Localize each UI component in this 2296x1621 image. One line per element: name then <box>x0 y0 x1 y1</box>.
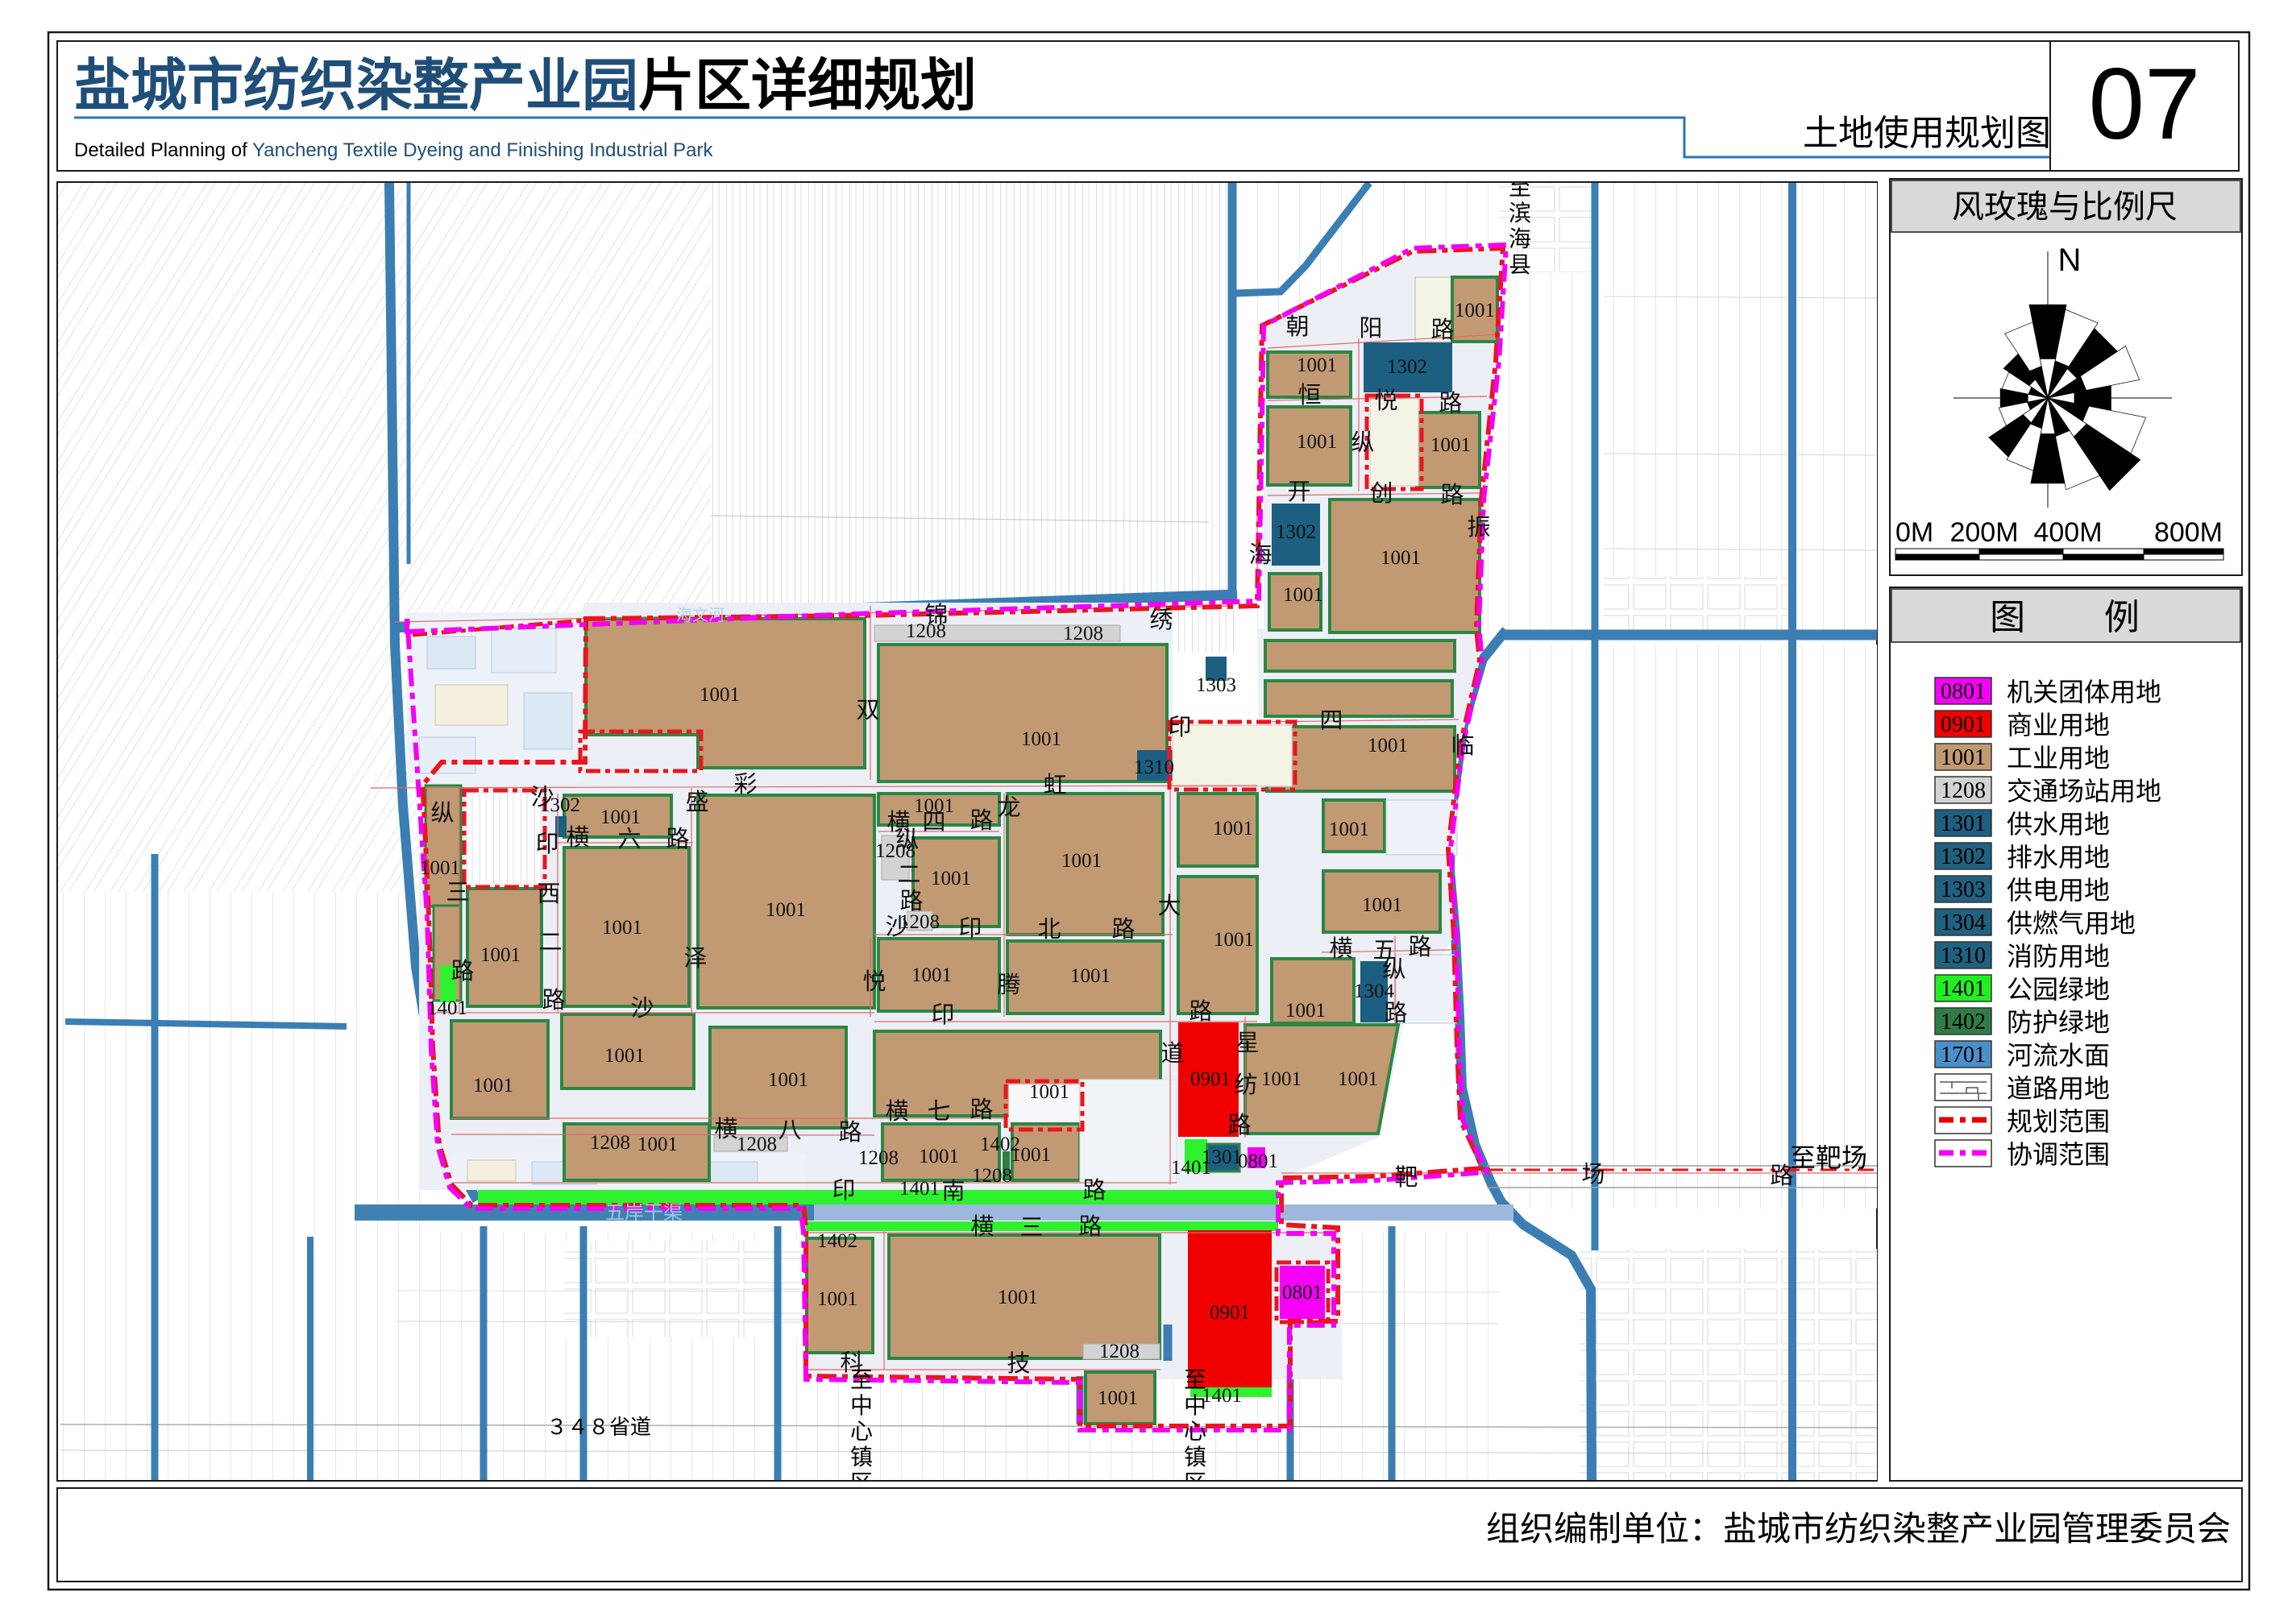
svg-text:技: 技 <box>1007 1350 1030 1377</box>
svg-text:N: N <box>2058 243 2082 278</box>
svg-text:阳: 阳 <box>1359 316 1382 342</box>
svg-text:路: 路 <box>1439 390 1462 417</box>
svg-text:六: 六 <box>617 826 641 852</box>
svg-text:恒: 恒 <box>1297 382 1321 408</box>
svg-text:横: 横 <box>714 1116 737 1142</box>
svg-text:龙: 龙 <box>997 794 1020 821</box>
svg-text:场: 场 <box>1581 1162 1605 1188</box>
svg-text:路: 路 <box>1408 934 1431 960</box>
svg-text:四: 四 <box>922 810 945 835</box>
svg-text:沙: 沙 <box>630 996 654 1022</box>
svg-text:1001: 1001 <box>768 1069 808 1091</box>
svg-text:1001: 1001 <box>1283 584 1323 606</box>
svg-text:1001: 1001 <box>817 1288 857 1310</box>
svg-text:创: 创 <box>1369 480 1393 507</box>
svg-text:悦: 悦 <box>862 968 886 995</box>
svg-text:800M: 800M <box>2154 517 2223 548</box>
svg-text:1310: 1310 <box>1134 757 1174 778</box>
svg-text:盛: 盛 <box>685 789 708 815</box>
svg-text:0801: 0801 <box>1282 1282 1322 1304</box>
svg-text:五岸干渠: 五岸干渠 <box>605 1202 683 1224</box>
svg-text:路: 路 <box>450 958 474 985</box>
svg-text:３４８省道: ３４８省道 <box>546 1416 651 1439</box>
svg-text:彩: 彩 <box>733 772 757 798</box>
svg-text:印: 印 <box>1168 715 1191 740</box>
svg-text:供电用地: 供电用地 <box>2007 876 2110 905</box>
svg-text:1402: 1402 <box>817 1230 857 1252</box>
svg-text:纵: 纵 <box>430 801 454 827</box>
svg-text:路: 路 <box>838 1119 862 1146</box>
svg-text:1001: 1001 <box>1430 434 1471 456</box>
svg-text:路: 路 <box>1384 1000 1407 1026</box>
svg-text:靶: 靶 <box>1394 1164 1418 1191</box>
svg-text:1401: 1401 <box>1941 976 1986 1001</box>
svg-text:0801: 0801 <box>1941 679 1986 704</box>
svg-text:0901: 0901 <box>1190 1068 1231 1090</box>
svg-text:1208: 1208 <box>1099 1341 1140 1362</box>
svg-text:路: 路 <box>1082 1177 1106 1204</box>
svg-text:1001: 1001 <box>600 806 641 828</box>
svg-text:1401: 1401 <box>1202 1385 1242 1407</box>
svg-text:海: 海 <box>1248 541 1272 568</box>
svg-text:1301: 1301 <box>1941 811 1986 836</box>
svg-text:七: 七 <box>927 1099 950 1125</box>
svg-text:腾: 腾 <box>997 972 1020 998</box>
svg-text:1001: 1001 <box>1368 735 1408 757</box>
svg-text:1001: 1001 <box>480 944 521 966</box>
svg-text:临: 临 <box>1451 732 1474 759</box>
svg-text:防护绿地: 防护绿地 <box>2007 1008 2110 1037</box>
svg-text:1001: 1001 <box>602 917 642 939</box>
svg-text:1001: 1001 <box>1261 1068 1302 1090</box>
svg-text:印: 印 <box>958 916 982 942</box>
svg-text:0801: 0801 <box>1238 1150 1278 1172</box>
svg-text:1208: 1208 <box>737 1134 777 1155</box>
svg-text:河流水面: 河流水面 <box>2007 1041 2110 1070</box>
svg-text:1001: 1001 <box>1061 850 1102 872</box>
svg-text:路: 路 <box>1430 317 1454 343</box>
svg-text:横: 横 <box>566 824 589 851</box>
svg-text:1001: 1001 <box>1381 547 1421 569</box>
svg-text:路: 路 <box>969 807 993 834</box>
svg-text:西: 西 <box>537 881 560 907</box>
svg-text:盐城市纺织染整产业园片区详细规划: 盐城市纺织染整产业园片区详细规划 <box>74 54 977 117</box>
svg-text:至滨海县: 至滨海县 <box>1509 176 1531 278</box>
svg-text:规划范围: 规划范围 <box>2007 1107 2110 1136</box>
svg-text:路: 路 <box>1227 1112 1251 1138</box>
svg-text:三: 三 <box>1019 1215 1043 1241</box>
svg-text:大: 大 <box>1157 893 1181 919</box>
svg-text:悦: 悦 <box>1374 388 1397 414</box>
svg-text:1001: 1001 <box>1297 431 1337 453</box>
svg-text:纵: 纵 <box>1351 430 1374 456</box>
svg-text:二: 二 <box>897 862 920 888</box>
svg-text:路: 路 <box>1440 482 1464 508</box>
svg-text:横: 横 <box>885 1098 908 1125</box>
svg-text:泽: 泽 <box>683 946 707 972</box>
svg-text:1208: 1208 <box>1941 778 1986 803</box>
svg-text:二: 二 <box>538 930 562 956</box>
svg-text:1402: 1402 <box>1941 1009 1986 1034</box>
svg-text:1401: 1401 <box>1171 1157 1211 1179</box>
svg-text:沙: 沙 <box>530 785 554 810</box>
svg-text:四: 四 <box>1319 708 1343 734</box>
svg-text:路: 路 <box>1078 1213 1102 1240</box>
svg-text:振: 振 <box>1467 514 1490 541</box>
svg-text:虹: 虹 <box>1043 772 1066 798</box>
svg-text:协调范围: 协调范围 <box>2007 1140 2110 1169</box>
svg-text:1001: 1001 <box>1021 728 1061 750</box>
svg-text:海文河: 海文河 <box>676 606 725 624</box>
svg-text:1001: 1001 <box>766 899 806 921</box>
svg-text:工业用地: 工业用地 <box>2007 744 2110 773</box>
svg-text:1001: 1001 <box>420 857 460 879</box>
svg-text:纵: 纵 <box>895 827 919 853</box>
svg-text:印: 印 <box>535 831 558 857</box>
svg-text:1208: 1208 <box>1063 623 1103 645</box>
svg-text:公园绿地: 公园绿地 <box>2007 975 2110 1004</box>
svg-text:路: 路 <box>1189 998 1212 1025</box>
svg-text:1302: 1302 <box>1941 844 1986 869</box>
svg-text:400M: 400M <box>2033 517 2102 548</box>
svg-text:07: 07 <box>2088 48 2200 160</box>
svg-text:1303: 1303 <box>1196 674 1236 696</box>
svg-text:朝: 朝 <box>1285 313 1309 340</box>
svg-text:土地使用规划图: 土地使用规划图 <box>1803 114 2051 153</box>
svg-text:1208: 1208 <box>858 1147 899 1169</box>
svg-text:1304: 1304 <box>1941 910 1986 935</box>
svg-text:至靶场: 至靶场 <box>1790 1143 1867 1172</box>
svg-text:200M: 200M <box>1949 517 2018 548</box>
svg-text:绣: 绣 <box>1149 607 1173 633</box>
svg-text:1401: 1401 <box>427 997 467 1019</box>
svg-text:沙: 沙 <box>885 914 908 940</box>
svg-text:1001: 1001 <box>1297 354 1337 376</box>
svg-text:开: 开 <box>1287 479 1310 505</box>
svg-text:1303: 1303 <box>1941 877 1986 902</box>
svg-text:路: 路 <box>666 826 689 852</box>
svg-text:锦: 锦 <box>924 602 948 628</box>
svg-text:1310: 1310 <box>1941 943 1986 968</box>
svg-text:1302: 1302 <box>1387 356 1427 378</box>
svg-text:1001: 1001 <box>911 964 952 986</box>
svg-text:1001: 1001 <box>931 868 971 889</box>
svg-text:1001: 1001 <box>1941 745 1986 770</box>
svg-text:0901: 0901 <box>1210 1302 1250 1324</box>
svg-text:图 例: 图 例 <box>1990 598 2140 637</box>
svg-text:0M: 0M <box>1895 517 1933 548</box>
svg-text:印: 印 <box>832 1178 855 1204</box>
svg-text:1001: 1001 <box>700 684 740 706</box>
svg-text:纺: 纺 <box>1234 1072 1257 1098</box>
svg-text:三: 三 <box>446 880 469 906</box>
svg-text:1001: 1001 <box>1329 819 1369 840</box>
svg-text:1001: 1001 <box>1285 1000 1326 1022</box>
svg-text:Detailed Planning of Yancheng: Detailed Planning of Yancheng Textile Dy… <box>74 139 714 161</box>
svg-text:印: 印 <box>931 1002 954 1028</box>
svg-text:1402: 1402 <box>980 1134 1020 1155</box>
svg-text:1001: 1001 <box>1070 965 1111 987</box>
svg-text:路: 路 <box>542 987 565 1014</box>
svg-text:组织编制单位：盐城市纺织染整产业园管理委员会: 组织编制单位：盐城市纺织染整产业园管理委员会 <box>1486 1510 2231 1548</box>
svg-text:1001: 1001 <box>998 1287 1038 1308</box>
svg-text:1001: 1001 <box>1213 818 1253 840</box>
svg-text:北: 北 <box>1037 917 1061 943</box>
svg-text:1001: 1001 <box>1214 929 1254 951</box>
svg-text:道路用地: 道路用地 <box>2007 1074 2110 1103</box>
svg-text:路: 路 <box>969 1097 993 1123</box>
svg-text:1701: 1701 <box>1941 1043 1986 1068</box>
svg-text:1208: 1208 <box>590 1132 630 1154</box>
svg-text:1001: 1001 <box>1098 1387 1138 1409</box>
svg-text:1208: 1208 <box>972 1165 1012 1187</box>
svg-text:机关团体用地: 机关团体用地 <box>2007 678 2161 707</box>
svg-text:消防用地: 消防用地 <box>2007 942 2110 971</box>
svg-text:纵: 纵 <box>1382 957 1405 983</box>
svg-text:供水用地: 供水用地 <box>2007 810 2110 839</box>
svg-text:南: 南 <box>941 1178 965 1204</box>
svg-text:至中心镇区: 至中心镇区 <box>850 1368 873 1496</box>
svg-text:1001: 1001 <box>1362 894 1402 916</box>
svg-text:1001: 1001 <box>919 1146 959 1167</box>
svg-text:路: 路 <box>899 888 923 914</box>
svg-text:1401: 1401 <box>899 1178 940 1200</box>
svg-text:八: 八 <box>778 1117 801 1143</box>
svg-text:星: 星 <box>1235 1030 1259 1056</box>
svg-text:横: 横 <box>970 1213 994 1240</box>
svg-text:商业用地: 商业用地 <box>2007 711 2110 740</box>
svg-text:横: 横 <box>1329 935 1352 962</box>
svg-text:1001: 1001 <box>1455 300 1495 321</box>
svg-text:1001: 1001 <box>637 1134 678 1155</box>
svg-text:1001: 1001 <box>1338 1068 1378 1090</box>
svg-text:至中心镇区: 至中心镇区 <box>1184 1368 1206 1496</box>
svg-text:0901: 0901 <box>1941 712 1986 737</box>
svg-text:供燃气用地: 供燃气用地 <box>2007 909 2136 938</box>
svg-text:双: 双 <box>856 698 879 723</box>
svg-text:1001: 1001 <box>1029 1081 1069 1103</box>
svg-text:排水用地: 排水用地 <box>2007 843 2110 872</box>
svg-text:1302: 1302 <box>1276 521 1316 543</box>
svg-text:交通场站用地: 交通场站用地 <box>2007 777 2161 806</box>
svg-text:道: 道 <box>1160 1040 1184 1067</box>
svg-text:1001: 1001 <box>473 1075 513 1097</box>
svg-text:路: 路 <box>1111 916 1135 943</box>
svg-text:1304: 1304 <box>1354 980 1395 1002</box>
svg-text:风玫瑰与比例尺: 风玫瑰与比例尺 <box>1952 189 2178 225</box>
svg-text:1001: 1001 <box>604 1045 645 1067</box>
